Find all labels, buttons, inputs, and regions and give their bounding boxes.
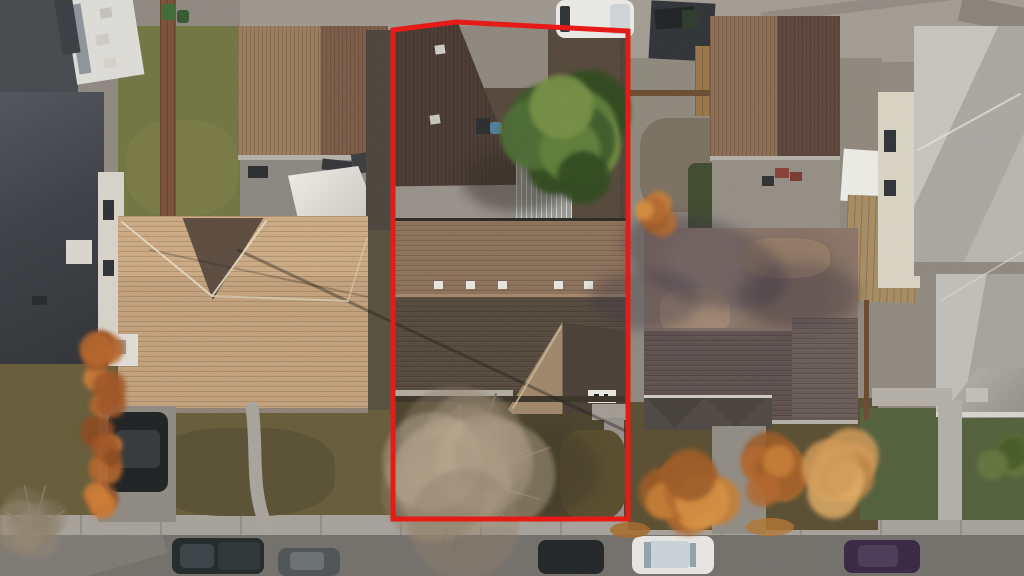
photo-grain-overlay bbox=[0, 0, 1024, 576]
aerial-photo bbox=[0, 0, 1024, 576]
photo-vector-layer bbox=[0, 0, 1024, 576]
